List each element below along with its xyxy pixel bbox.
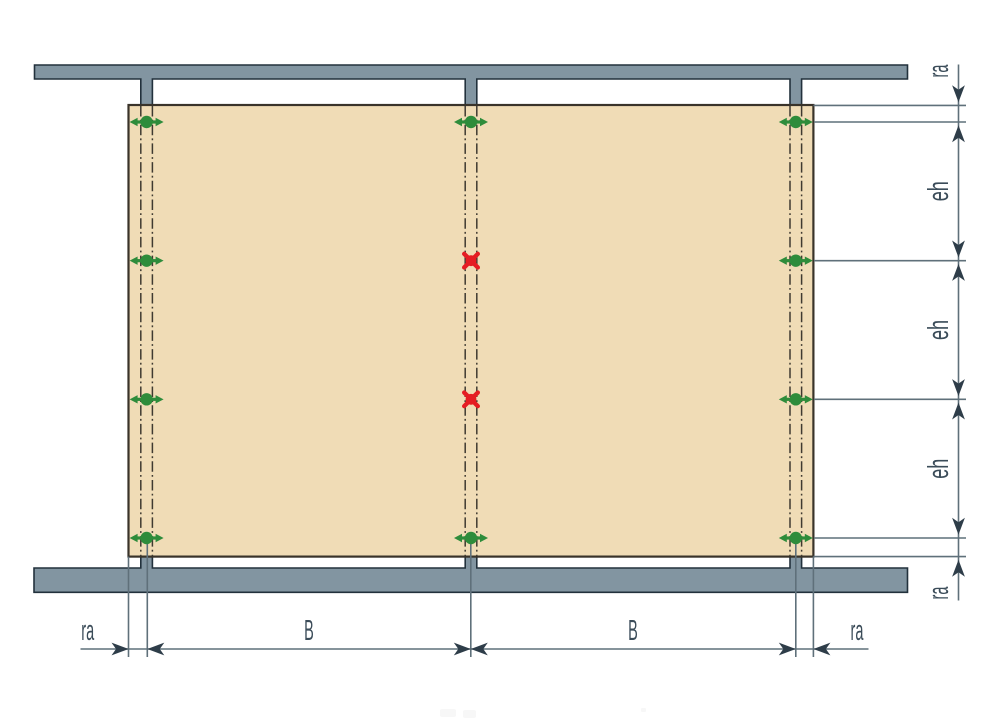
svg-text:B: B <box>304 613 314 646</box>
svg-text:B: B <box>628 613 638 646</box>
svg-text:eh: eh <box>923 459 955 479</box>
svg-text:eh: eh <box>923 320 955 340</box>
svg-text:ra: ra <box>851 613 864 646</box>
svg-text:ra: ra <box>81 613 94 646</box>
svg-text:ra: ra <box>921 64 954 77</box>
svg-text:eh: eh <box>923 181 955 201</box>
svg-text:ra: ra <box>921 586 954 599</box>
